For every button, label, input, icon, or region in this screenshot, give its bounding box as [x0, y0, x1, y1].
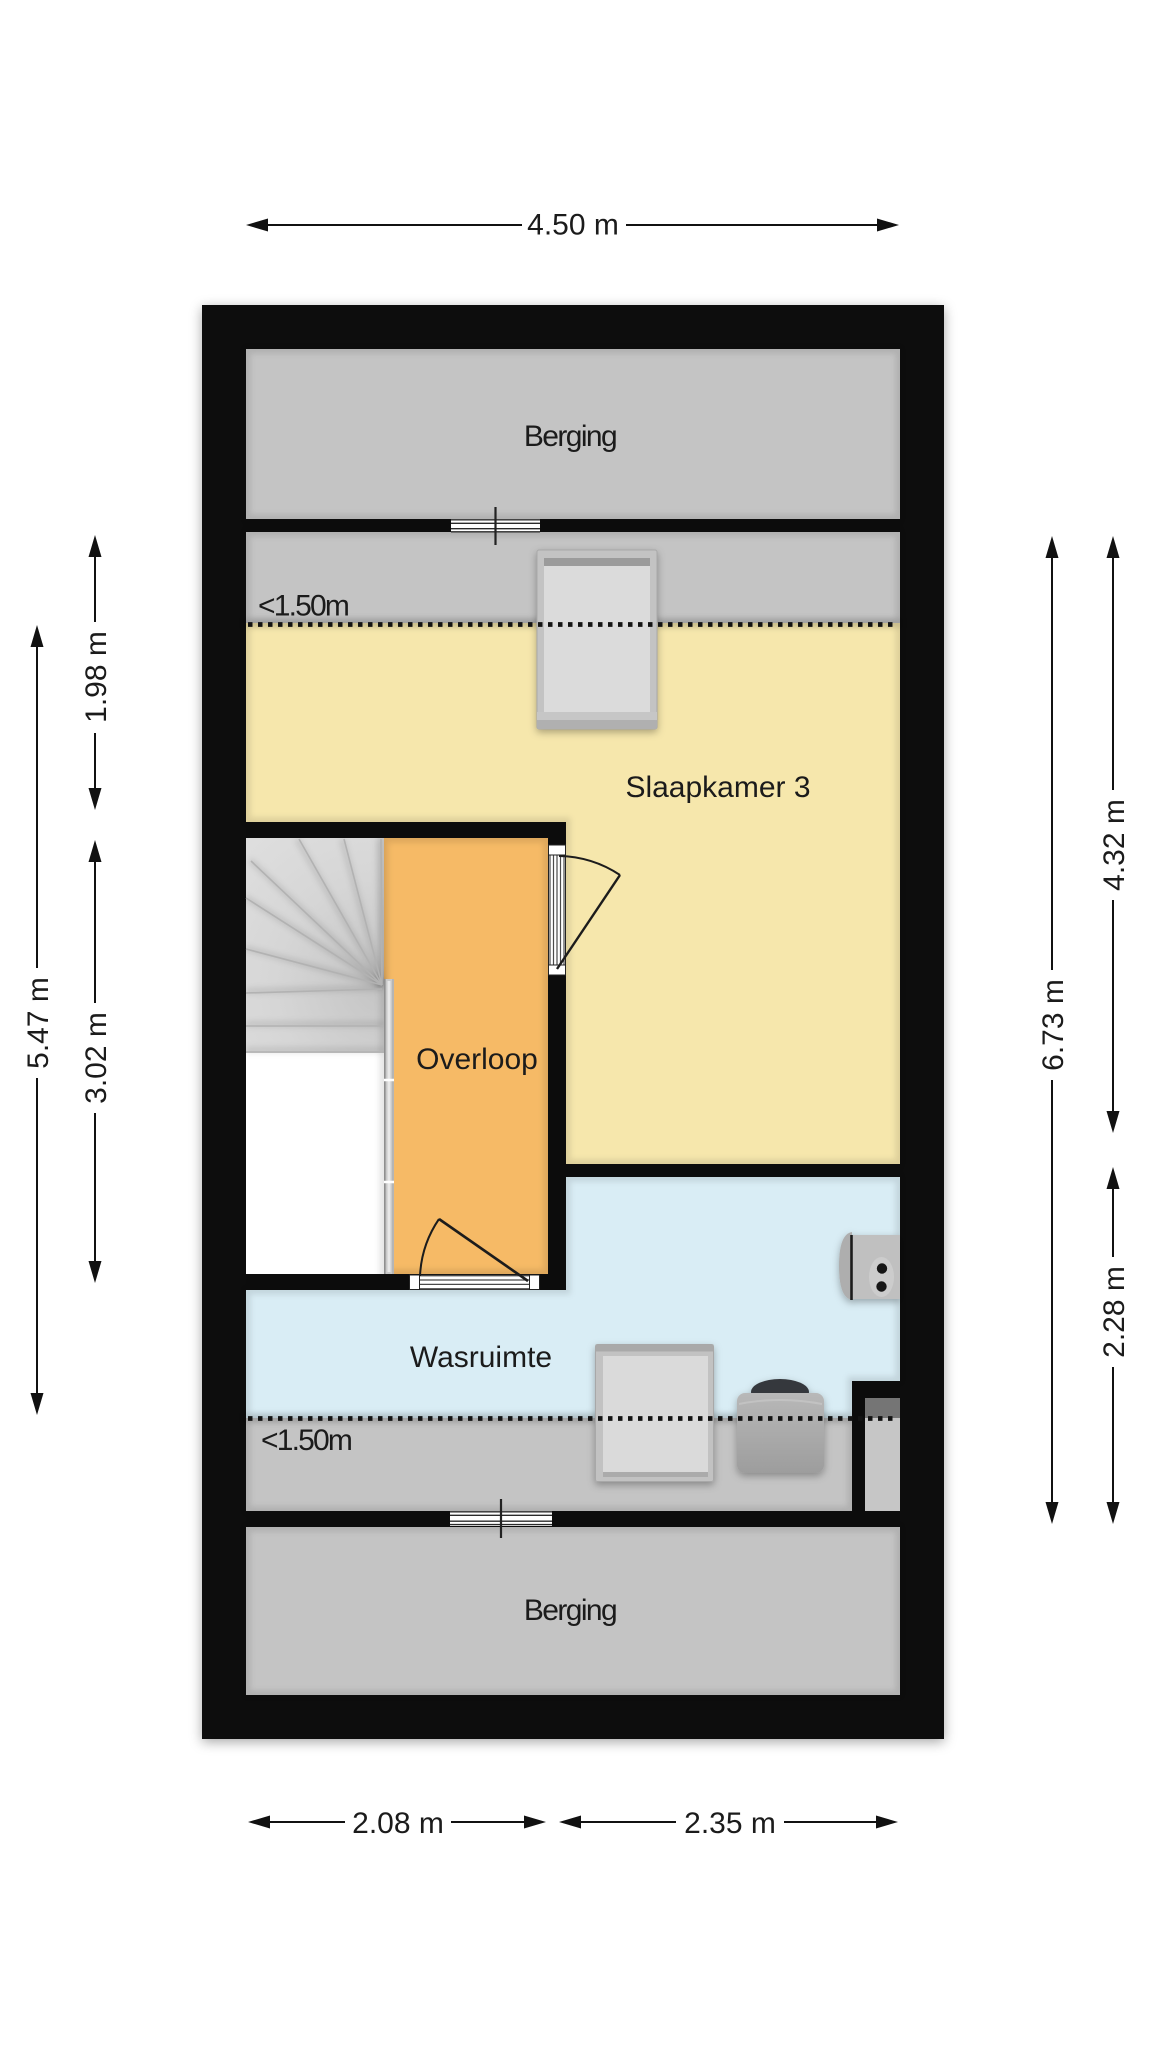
svg-text:2.28 m: 2.28 m — [1098, 1266, 1131, 1358]
svg-text:Berging: Berging — [524, 1594, 616, 1627]
svg-text:Wasruimte: Wasruimte — [410, 1341, 552, 1374]
svg-text:2.35 m: 2.35 m — [684, 1807, 776, 1840]
svg-text:4.50 m: 4.50 m — [527, 209, 619, 242]
svg-text:Overloop: Overloop — [416, 1043, 538, 1076]
svg-text:<1.50m: <1.50m — [261, 1424, 352, 1457]
svg-text:3.02 m: 3.02 m — [80, 1012, 113, 1104]
svg-text:Slaapkamer 3: Slaapkamer 3 — [625, 771, 810, 804]
svg-text:Berging: Berging — [524, 420, 616, 453]
svg-text:1.98 m: 1.98 m — [80, 631, 113, 723]
svg-text:5.47 m: 5.47 m — [22, 977, 55, 1069]
svg-text:6.73 m: 6.73 m — [1037, 979, 1070, 1071]
svg-text:2.08 m: 2.08 m — [352, 1807, 444, 1840]
svg-text:4.32 m: 4.32 m — [1098, 799, 1131, 891]
svg-text:<1.50m: <1.50m — [258, 590, 349, 623]
